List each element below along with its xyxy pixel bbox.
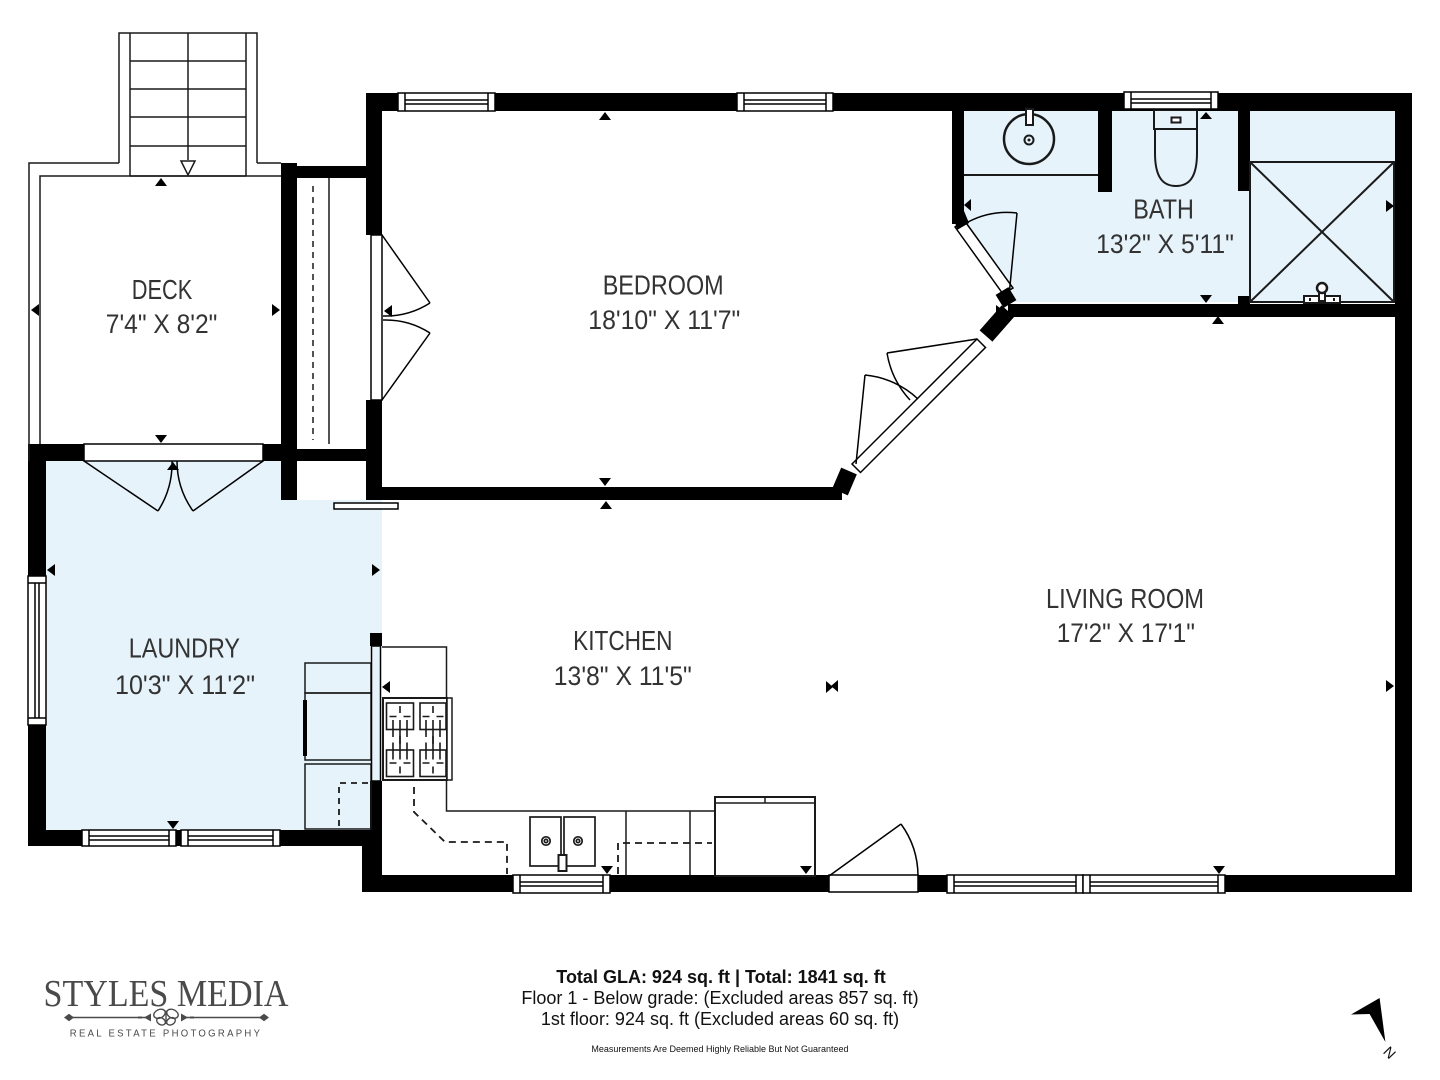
svg-text:STYLES MEDIA: STYLES MEDIA	[44, 973, 289, 1015]
svg-text:REAL ESTATE PHOTOGRAPHY: REAL ESTATE PHOTOGRAPHY	[70, 1029, 263, 1040]
svg-text:13'2" X 5'11": 13'2" X 5'11"	[1096, 229, 1234, 259]
svg-text:Total GLA: 924 sq. ft | Total:: Total GLA: 924 sq. ft | Total: 1841 sq. …	[556, 967, 885, 987]
svg-text:7'4" X 8'2": 7'4" X 8'2"	[106, 309, 218, 339]
svg-text:LIVING ROOM: LIVING ROOM	[1046, 583, 1204, 614]
svg-text:LAUNDRY: LAUNDRY	[129, 633, 241, 664]
svg-text:1st floor: 924 sq. ft (Exclude: 1st floor: 924 sq. ft (Excluded areas 60…	[541, 1009, 899, 1029]
svg-text:BATH: BATH	[1133, 193, 1194, 224]
svg-text:13'8" X 11'5": 13'8" X 11'5"	[554, 661, 692, 691]
svg-text:17'2" X 17'1": 17'2" X 17'1"	[1057, 618, 1195, 648]
svg-text:Floor 1 - Below grade: (Exclud: Floor 1 - Below grade: (Excluded areas 8…	[521, 988, 918, 1008]
svg-text:18'10" X 11'7": 18'10" X 11'7"	[588, 305, 740, 335]
svg-text:DECK: DECK	[132, 274, 193, 305]
svg-text:Measurements Are Deemed Highly: Measurements Are Deemed Highly Reliable …	[591, 1044, 848, 1054]
svg-text:BEDROOM: BEDROOM	[603, 270, 724, 301]
svg-text:KITCHEN: KITCHEN	[573, 625, 672, 656]
svg-text:10'3" X 11'2": 10'3" X 11'2"	[115, 670, 255, 700]
